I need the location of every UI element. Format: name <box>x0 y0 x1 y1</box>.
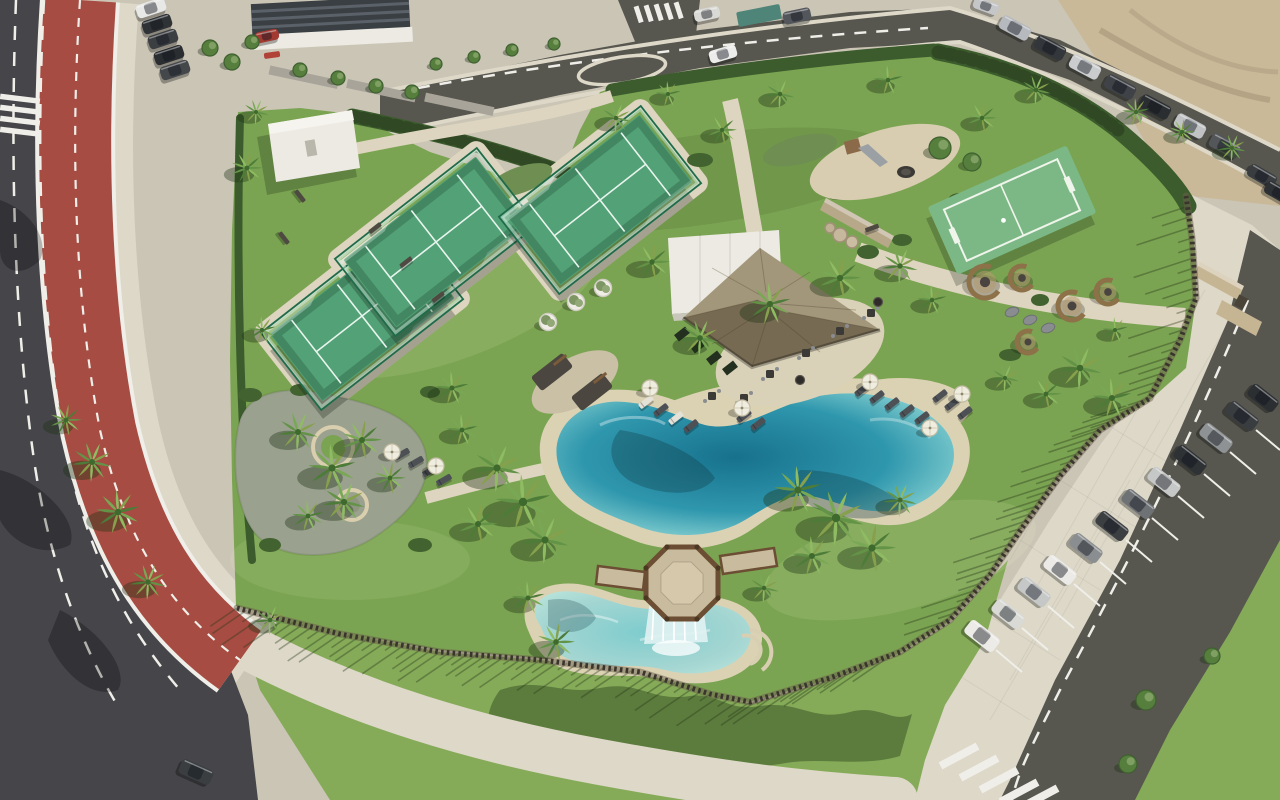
fire-bowl <box>874 298 883 307</box>
aerial-photo-resort-park <box>0 0 1280 800</box>
fire-bowl <box>796 376 805 385</box>
scene-canvas <box>0 0 1280 800</box>
